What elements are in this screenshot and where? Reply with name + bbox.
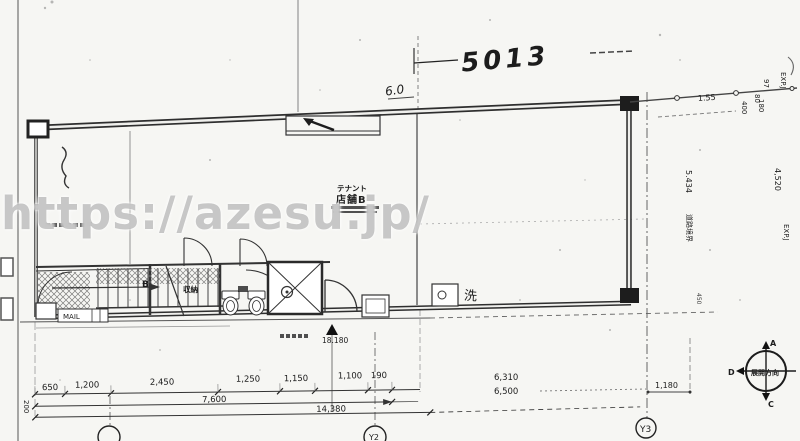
dim-1150: 1,150 (284, 374, 308, 384)
expj-lower: EXP.J (782, 224, 790, 241)
dim-97: 97 (762, 79, 770, 88)
dimension-chain: 650 1,200 2,450 1,250 1,150 1,100 190 7,… (32, 368, 641, 420)
dim-155: 1.55 (698, 93, 716, 103)
handwritten-5013: 5013 (460, 41, 551, 79)
plan-drawing: 650 1,200 2,450 1,250 1,150 1,100 190 7,… (0, 0, 800, 441)
compass-a: A (770, 339, 777, 348)
expj-upper: EXP.J (779, 72, 787, 89)
scan-noise (44, 1, 741, 381)
compass-c: C (768, 400, 774, 409)
level-label: 18.180 (322, 336, 348, 345)
right-bottom-dims: 6,310 6,500 1,180 (494, 373, 692, 397)
grid-label-y3: Y3 (639, 425, 651, 435)
stair-label: B (142, 280, 149, 290)
wash-label: 洗 (463, 289, 477, 305)
compass-d: D (728, 368, 735, 377)
dim-4520: 4,520 (773, 168, 782, 191)
dim-400: 400 (740, 101, 748, 114)
tenant-name-label: 店舗B (336, 193, 367, 206)
reference-lines (18, 0, 793, 441)
dim-650: 650 (42, 383, 58, 393)
mail-label: MAIL (63, 313, 80, 321)
boundary-label: 道路境界 (685, 214, 694, 242)
dim-1200: 1,200 (75, 380, 99, 390)
dim-1250: 1,250 (236, 375, 260, 385)
dim-14380: 14,380 (316, 404, 346, 414)
dim-1180: 1,180 (655, 381, 678, 390)
elevation-direction-key: A C D 展開方向 (728, 339, 796, 409)
dim-1100: 1,100 (338, 371, 362, 381)
tenant-type-label: テナント (337, 184, 367, 193)
dim-2450: 2,450 (150, 378, 174, 388)
dim-6500: 6,500 (494, 387, 518, 397)
dim-7600: 7,600 (202, 395, 226, 405)
dim-450: 450 (695, 293, 702, 305)
handwritten-60: 6.0 (384, 82, 405, 99)
dim-180: 180 (757, 99, 765, 112)
dim-6310: 6,310 (494, 373, 518, 383)
grid-label-y2: Y2 (368, 433, 379, 441)
floor-plan-scan: 650 1,200 2,450 1,250 1,150 1,100 190 7,… (0, 0, 800, 441)
compass-label: 展開方向 (750, 368, 779, 377)
handwritten-notes: 5013 6.0 (384, 41, 550, 99)
dim-5434: 5.434 (684, 170, 693, 193)
dim-190: 190 (371, 371, 387, 381)
dim-200-rotated: 200 (22, 400, 30, 413)
right-edge-dims: 1.55 97 80 400 180 EXP.J EXP.J 4,520 5.4… (684, 72, 790, 305)
walls (1, 87, 797, 321)
storage-label: 収納 (183, 284, 198, 294)
